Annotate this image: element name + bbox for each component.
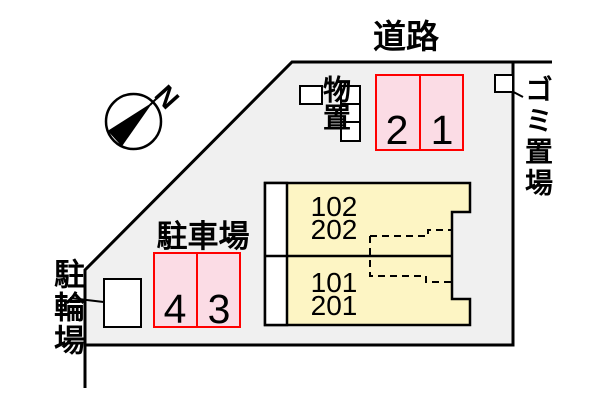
garbage-area-label: ゴミ置場 bbox=[517, 75, 557, 199]
unit-number: 202 bbox=[288, 218, 380, 241]
parking-space-1-number: 1 bbox=[420, 110, 464, 151]
bicycle-parking-label: 駐輪場 bbox=[44, 258, 89, 357]
garbage-box bbox=[494, 74, 514, 93]
bicycle-parking-box bbox=[103, 278, 142, 328]
parking-space-2-number: 2 bbox=[375, 110, 419, 151]
parking-space-3-number: 3 bbox=[197, 289, 241, 330]
site-plan: N 道路 ゴミ置場 物置 2 1 4 3 駐車場 駐輪場 102 202 101… bbox=[0, 0, 600, 400]
storage-label: 物置 bbox=[315, 75, 355, 131]
parking-space-4-number: 4 bbox=[153, 289, 197, 330]
north-compass: N bbox=[106, 79, 185, 149]
building-west-corridor bbox=[265, 183, 287, 325]
unit-number: 201 bbox=[288, 294, 380, 317]
parking-lot-label: 駐車場 bbox=[151, 211, 255, 256]
unit-label-101-201: 101 201 bbox=[288, 271, 380, 317]
road-label: 道路 bbox=[344, 10, 468, 58]
compass-north-label: N bbox=[149, 79, 186, 115]
unit-label-102-202: 102 202 bbox=[288, 195, 380, 241]
